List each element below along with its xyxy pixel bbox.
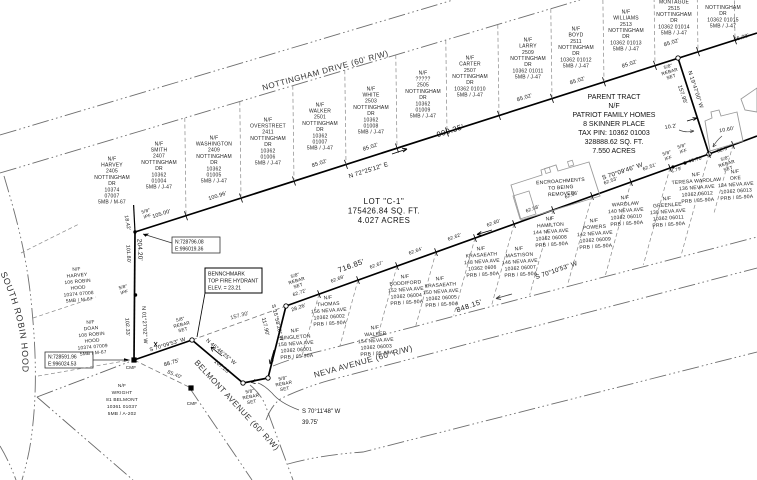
- svg-text:N/F: N/F: [210, 135, 219, 141]
- svg-text:E:996019.36: E:996019.36: [175, 247, 204, 253]
- svg-text:WALKER: WALKER: [309, 109, 331, 115]
- svg-text:N/F: N/F: [118, 383, 126, 389]
- svg-text:LARRY: LARRY: [519, 44, 537, 50]
- svg-text:10362 01011: 10362 01011: [512, 68, 543, 74]
- svg-text:NOTTINGHAM: NOTTINGHAM: [705, 5, 741, 11]
- svg-text:DR: DR: [524, 62, 532, 68]
- svg-text:N/F: N/F: [316, 102, 325, 108]
- svg-text:N:728796.08: N:728796.08: [175, 240, 204, 246]
- svg-text:4.027 ACRES: 4.027 ACRES: [358, 216, 411, 225]
- svg-text:DR: DR: [210, 160, 218, 166]
- svg-text:HARVEY: HARVEY: [101, 163, 123, 169]
- svg-text:NOTTINGHAM: NOTTINGHAM: [510, 56, 546, 62]
- svg-text:WILLIAMS: WILLIAMS: [613, 16, 639, 22]
- svg-text:S 70°11'48" W: S 70°11'48" W: [302, 409, 341, 415]
- svg-text:DR: DR: [670, 18, 678, 24]
- svg-text:10362: 10362: [152, 172, 167, 178]
- svg-text:10362 01015: 10362 01015: [707, 17, 738, 23]
- svg-text:N/F: N/F: [524, 37, 533, 43]
- svg-text:N/F: N/F: [155, 141, 164, 147]
- svg-text:SMITH: SMITH: [151, 148, 168, 154]
- svg-text:DR: DR: [155, 166, 163, 172]
- svg-text:01004: 01004: [152, 179, 167, 185]
- svg-text:2513: 2513: [620, 22, 632, 28]
- svg-text:10362: 10362: [207, 166, 222, 172]
- svg-text:01005: 01005: [207, 173, 222, 179]
- svg-text:N:728591.96: N:728591.96: [48, 355, 77, 361]
- svg-text:5MB / J-47: 5MB / J-47: [410, 114, 436, 120]
- svg-text:175426.84 SQ. FT.: 175426.84 SQ. FT.: [348, 207, 420, 216]
- svg-text:DR: DR: [419, 95, 427, 101]
- svg-text:DR: DR: [367, 111, 375, 117]
- svg-text:BENNCHMARK: BENNCHMARK: [208, 272, 245, 278]
- svg-text:5MB / J-47: 5MB / J-47: [358, 130, 384, 136]
- svg-text:5MB / A-202: 5MB / A-202: [108, 411, 137, 417]
- svg-text:WHITE: WHITE: [362, 93, 380, 99]
- svg-text:NOTTINGHAM: NOTTINGHAM: [353, 105, 389, 111]
- svg-text:01009: 01009: [416, 108, 431, 114]
- svg-text:5MB / J-47: 5MB / J-47: [661, 31, 687, 37]
- svg-text:10361 01037: 10361 01037: [107, 404, 137, 410]
- svg-text:5MB / J-47: 5MB / J-47: [613, 47, 639, 53]
- svg-text:DR: DR: [622, 34, 630, 40]
- svg-text:DR: DR: [264, 142, 272, 148]
- svg-text:OVERSTREET: OVERSTREET: [250, 124, 286, 130]
- svg-text:NOTTINGHAM: NOTTINGHAM: [250, 136, 286, 142]
- svg-text:2507: 2507: [464, 68, 476, 74]
- svg-text:81 BELMONT: 81 BELMONT: [106, 397, 138, 403]
- svg-text:DR: DR: [572, 51, 580, 57]
- svg-text:2409: 2409: [208, 148, 220, 154]
- svg-text:CMF: CMF: [126, 365, 137, 370]
- svg-text:07007: 07007: [105, 194, 120, 200]
- svg-text:2407: 2407: [153, 154, 165, 160]
- svg-text:10374: 10374: [105, 187, 120, 193]
- svg-text:2515: 2515: [668, 6, 680, 12]
- svg-text:NOTTINGHAM: NOTTINGHAM: [558, 45, 594, 51]
- svg-text:5MB / J-47: 5MB / J-47: [515, 75, 541, 81]
- svg-text:204.20': 204.20': [135, 239, 143, 262]
- svg-text:WRIGHT: WRIGHT: [112, 390, 133, 396]
- svg-text:LOT "C-1": LOT "C-1": [364, 197, 405, 206]
- svg-text:2505: 2505: [417, 83, 429, 89]
- svg-text:5MB / J-47: 5MB / J-47: [146, 185, 172, 191]
- svg-text:E:996024.53: E:996024.53: [48, 362, 77, 368]
- svg-text:DR: DR: [108, 181, 116, 187]
- svg-text:10362: 10362: [261, 148, 276, 154]
- svg-text:2503: 2503: [365, 99, 377, 105]
- svg-text:?????: ?????: [416, 77, 431, 83]
- svg-text:TOP FIRE HYDRANT: TOP FIRE HYDRANT: [208, 279, 259, 285]
- svg-text:NOTTINGHAM: NOTTINGHAM: [94, 175, 130, 181]
- svg-text:5MB / J-47: 5MB / J-47: [457, 93, 483, 99]
- svg-text:MONTAGUE: MONTAGUE: [659, 0, 690, 6]
- svg-text:01007: 01007: [313, 140, 328, 146]
- svg-text:5MB / J-47: 5MB / J-47: [201, 179, 227, 185]
- svg-text:N/F: N/F: [367, 86, 376, 92]
- svg-text:8 SKINNER PLACE: 8 SKINNER PLACE: [583, 121, 645, 128]
- svg-text:N/F: N/F: [608, 103, 619, 110]
- svg-text:NOTTINGHAM: NOTTINGHAM: [302, 121, 338, 127]
- svg-text:PATRIOT FAMILY HOMES: PATRIOT FAMILY HOMES: [573, 112, 656, 119]
- svg-text:10362 01010: 10362 01010: [454, 86, 485, 92]
- svg-text:102.33': 102.33': [124, 318, 131, 337]
- svg-text:DR: DR: [719, 11, 727, 17]
- svg-text:2405: 2405: [106, 169, 118, 175]
- svg-text:10362: 10362: [313, 133, 328, 139]
- svg-text:N/F: N/F: [86, 319, 95, 326]
- svg-text:10362: 10362: [364, 117, 379, 123]
- svg-text:N/F: N/F: [572, 26, 581, 32]
- svg-text:5MB / M-67: 5MB / M-67: [98, 200, 126, 206]
- svg-text:101.80': 101.80': [125, 245, 132, 264]
- svg-text:2411: 2411: [262, 130, 274, 136]
- svg-text:N/F: N/F: [264, 117, 273, 123]
- svg-text:CARTER: CARTER: [459, 62, 481, 68]
- svg-text:NOTTINGHAM: NOTTINGHAM: [452, 74, 488, 80]
- svg-text:TAX PIN: 10362 01003: TAX PIN: 10362 01003: [578, 130, 650, 137]
- svg-text:CMF: CMF: [187, 401, 198, 406]
- svg-text:01006: 01006: [261, 155, 276, 161]
- svg-text:BOYD: BOYD: [569, 33, 584, 39]
- svg-text:2509: 2509: [522, 50, 534, 56]
- svg-text:5MB / J-47: 5MB / J-47: [710, 24, 736, 30]
- svg-text:328888.62 SQ. FT.: 328888.62 SQ. FT.: [585, 139, 644, 146]
- svg-text:PARENT TRACT: PARENT TRACT: [588, 94, 642, 101]
- svg-text:01008: 01008: [364, 124, 379, 130]
- svg-text:2501: 2501: [314, 115, 326, 121]
- svg-text:10362 01014: 10362 01014: [658, 24, 689, 30]
- svg-text:10362 01013: 10362 01013: [610, 40, 641, 46]
- svg-text:NOTTINGHAM: NOTTINGHAM: [608, 28, 644, 34]
- svg-text:2511: 2511: [570, 39, 582, 45]
- svg-text:39.75': 39.75': [302, 420, 318, 426]
- svg-text:10362: 10362: [416, 101, 431, 107]
- svg-text:N/F: N/F: [622, 9, 631, 15]
- svg-text:DR: DR: [316, 127, 324, 133]
- svg-text:N/F: N/F: [466, 55, 475, 61]
- svg-text:NOTTINGHAM: NOTTINGHAM: [405, 89, 441, 95]
- svg-text:DR: DR: [466, 80, 474, 86]
- svg-text:7.550 ACRES: 7.550 ACRES: [592, 148, 636, 155]
- svg-text:N/F: N/F: [72, 266, 81, 273]
- svg-text:NOTTINGHAM: NOTTINGHAM: [141, 160, 177, 166]
- svg-text:N/F: N/F: [419, 70, 428, 76]
- svg-text:NOTTINGHAM: NOTTINGHAM: [196, 154, 232, 160]
- svg-text:10362 01012: 10362 01012: [560, 57, 591, 63]
- svg-text:WASHINGTON: WASHINGTON: [196, 142, 232, 148]
- svg-text:5MB / J-47: 5MB / J-47: [307, 146, 333, 152]
- svg-text:5MB / J-47: 5MB / J-47: [255, 161, 281, 167]
- svg-text:ELEV. = 23.21: ELEV. = 23.21: [208, 286, 241, 292]
- svg-text:NOTTINGHAM: NOTTINGHAM: [656, 12, 692, 18]
- svg-text:N/F: N/F: [108, 156, 117, 162]
- svg-text:5MB / J-47: 5MB / J-47: [563, 64, 589, 70]
